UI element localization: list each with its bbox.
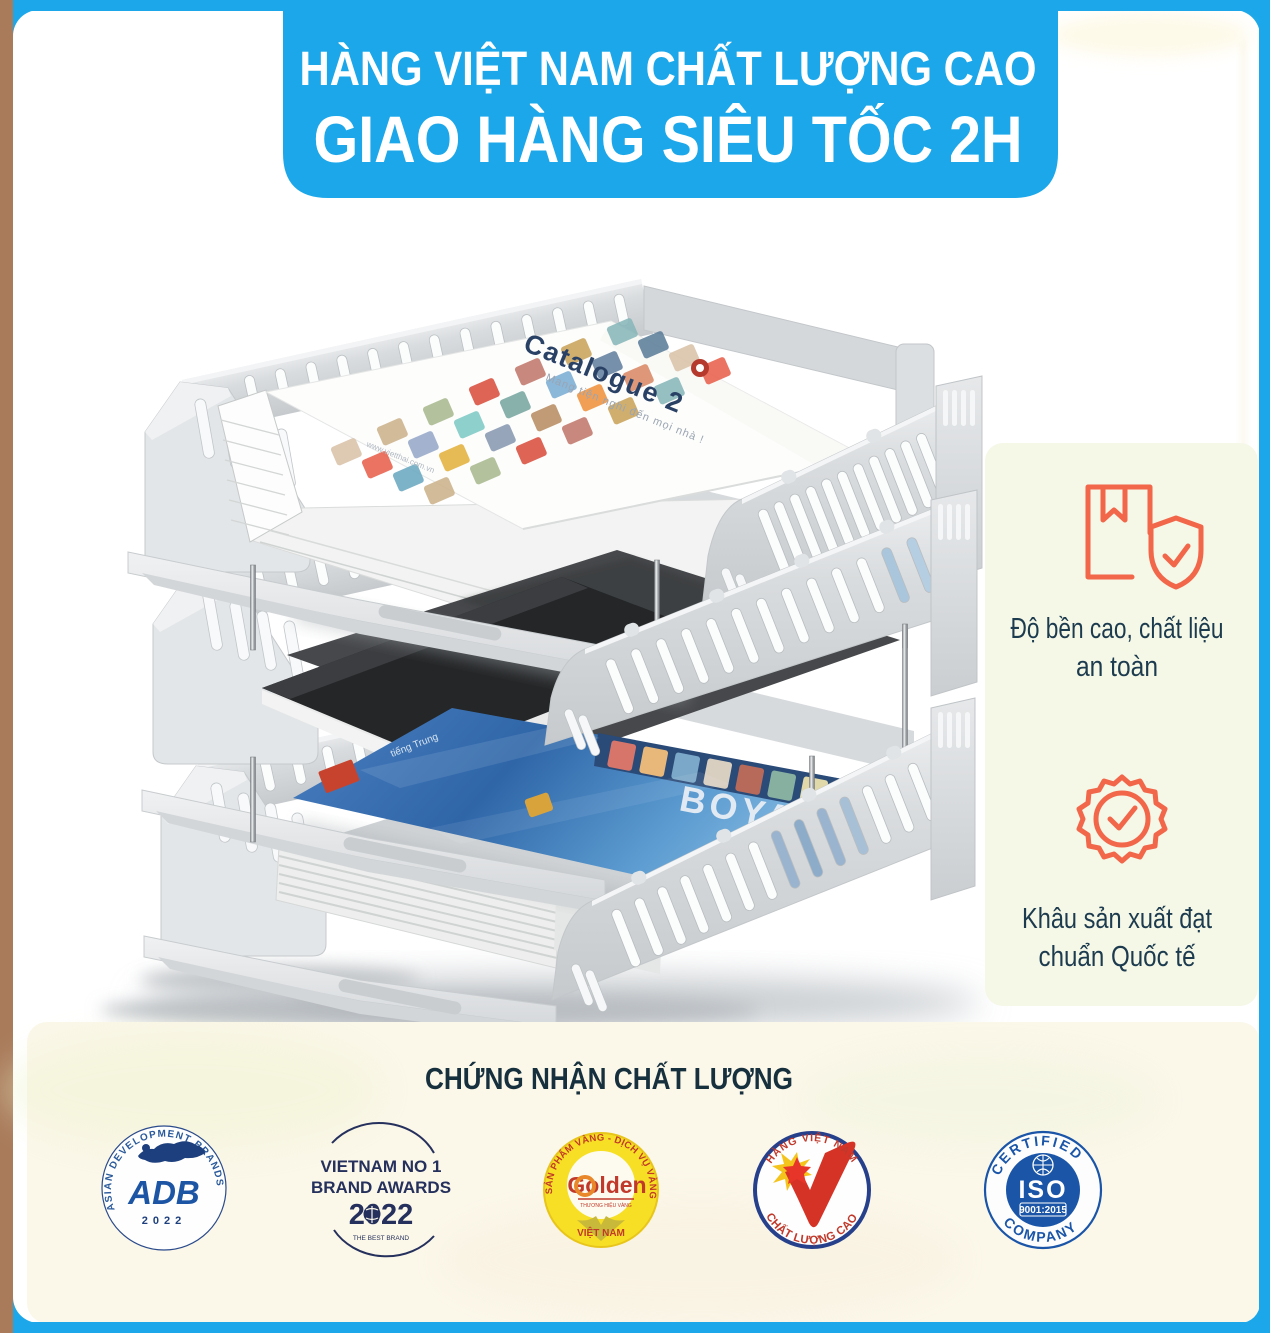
svg-text:chuẩn Quốc tế: chuẩn Quốc tế xyxy=(1039,941,1196,973)
svg-text:BRAND AWARDS: BRAND AWARDS xyxy=(311,1178,451,1197)
svg-text:GIAO HÀNG SIÊU TỐC 2H: GIAO HÀNG SIÊU TỐC 2H xyxy=(314,102,1023,176)
svg-text:THƯƠNG HIỆU VÀNG: THƯƠNG HIỆU VÀNG xyxy=(580,1201,632,1209)
svg-text:CHỨNG NHẬN CHẤT LƯỢNG: CHỨNG NHẬN CHẤT LƯỢNG xyxy=(425,1060,793,1096)
svg-text:HÀNG VIỆT NAM CHẤT LƯỢNG CAO: HÀNG VIỆT NAM CHẤT LƯỢNG CAO xyxy=(300,41,1037,96)
svg-text:an toàn: an toàn xyxy=(1076,651,1158,683)
svg-text:Khâu sản xuất đạt: Khâu sản xuất đạt xyxy=(1022,903,1212,935)
svg-text:VIETNAM NO 1: VIETNAM NO 1 xyxy=(321,1157,442,1176)
svg-text:2022: 2022 xyxy=(349,1199,414,1231)
svg-text:THE BEST BRAND: THE BEST BRAND xyxy=(353,1235,410,1242)
svg-text:VIỆT NAM: VIỆT NAM xyxy=(577,1226,625,1239)
svg-text:2022: 2022 xyxy=(142,1215,186,1227)
svg-text:ISO: ISO xyxy=(1018,1176,1067,1204)
svg-text:9001:2015: 9001:2015 xyxy=(1019,1205,1067,1216)
svg-text:Độ bền cao, chất liệu: Độ bền cao, chất liệu xyxy=(1011,613,1224,645)
svg-text:ADB: ADB xyxy=(127,1174,200,1211)
